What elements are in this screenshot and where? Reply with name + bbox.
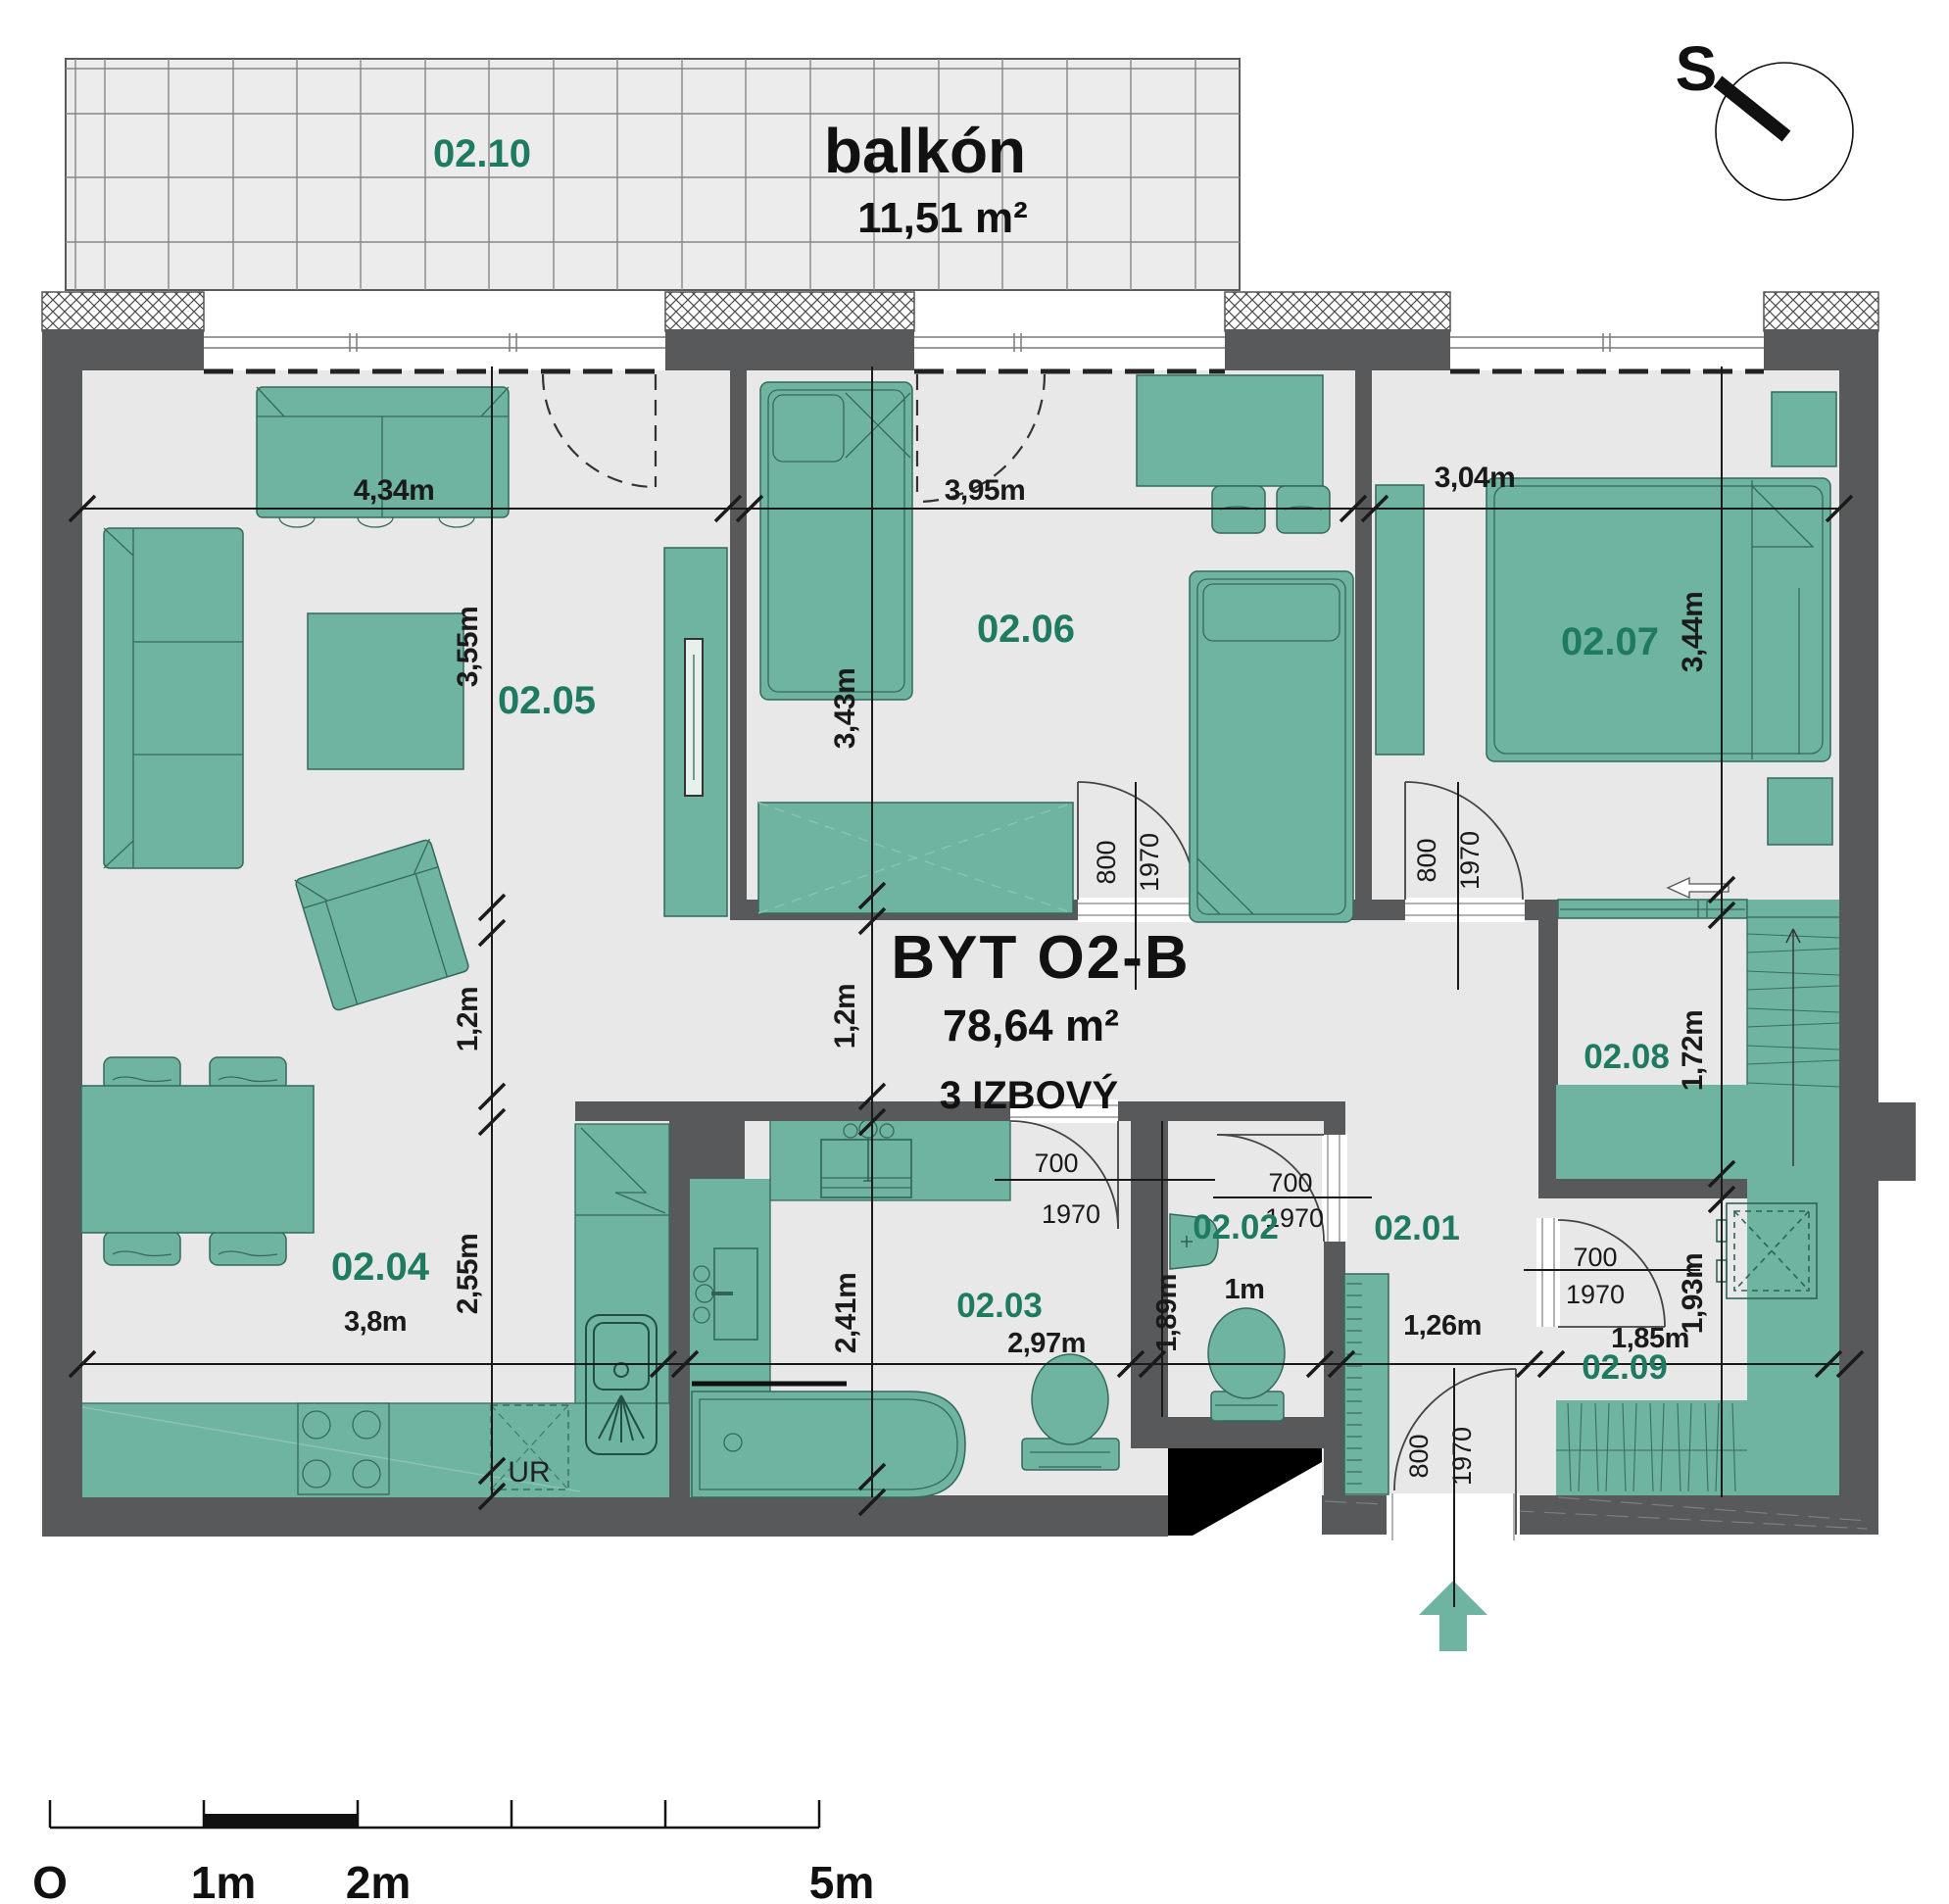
svg-text:1970: 1970 (1447, 1427, 1477, 1486)
svg-text:02.10: 02.10 (433, 132, 531, 175)
svg-text:1970: 1970 (1042, 1199, 1100, 1229)
svg-text:3,8m: 3,8m (344, 1306, 407, 1338)
svg-text:3 IZBOVÝ: 3 IZBOVÝ (940, 1072, 1119, 1117)
svg-text:02.02: 02.02 (1193, 1208, 1279, 1246)
svg-text:02.09: 02.09 (1582, 1348, 1668, 1387)
svg-text:1970: 1970 (1455, 831, 1485, 890)
svg-text:2,55m: 2,55m (452, 1234, 484, 1315)
svg-text:1,26m: 1,26m (1403, 1310, 1482, 1342)
svg-text:02.06: 02.06 (977, 608, 1075, 651)
svg-text:1m: 1m (191, 1857, 256, 1904)
svg-text:700: 700 (1034, 1148, 1078, 1178)
svg-text:3,04m: 3,04m (1435, 462, 1516, 494)
svg-text:1970: 1970 (1566, 1280, 1625, 1309)
svg-text:78,64 m²: 78,64 m² (943, 1001, 1119, 1050)
svg-text:11,51 m²: 11,51 m² (857, 194, 1028, 242)
svg-text:02.07: 02.07 (1561, 620, 1659, 663)
svg-text:800: 800 (1404, 1434, 1434, 1478)
svg-text:1970: 1970 (1135, 833, 1164, 892)
svg-text:800: 800 (1092, 840, 1121, 884)
svg-text:3,44m: 3,44m (1677, 592, 1709, 673)
svg-text:700: 700 (1268, 1168, 1312, 1197)
svg-text:800: 800 (1412, 838, 1441, 882)
svg-text:02.08: 02.08 (1584, 1038, 1670, 1076)
svg-text:1,93m: 1,93m (1677, 1253, 1709, 1335)
svg-text:balkón: balkón (824, 116, 1026, 186)
svg-text:4,34m: 4,34m (354, 474, 435, 507)
svg-text:1,2m: 1,2m (452, 987, 484, 1051)
svg-text:02.01: 02.01 (1374, 1209, 1460, 1247)
svg-text:BYT O2-B: BYT O2-B (891, 924, 1190, 992)
svg-text:5m: 5m (809, 1857, 874, 1904)
svg-text:3,43m: 3,43m (829, 668, 861, 750)
svg-text:O: O (32, 1857, 68, 1904)
svg-text:1,89m: 1,89m (1151, 1274, 1183, 1352)
svg-text:3,55m: 3,55m (452, 607, 484, 688)
svg-text:2m: 2m (346, 1857, 411, 1904)
svg-text:02.04: 02.04 (331, 1245, 430, 1289)
svg-text:UR: UR (508, 1456, 550, 1489)
svg-text:02.05: 02.05 (498, 679, 596, 722)
svg-text:2,41m: 2,41m (830, 1273, 862, 1354)
svg-text:S: S (1676, 33, 1718, 104)
svg-text:1m: 1m (1225, 1274, 1265, 1305)
svg-text:3,95m: 3,95m (945, 474, 1026, 507)
svg-text:02.03: 02.03 (956, 1287, 1043, 1325)
svg-text:1,72m: 1,72m (1677, 1010, 1709, 1092)
svg-text:2,97m: 2,97m (1007, 1328, 1086, 1359)
svg-text:700: 700 (1573, 1243, 1617, 1272)
svg-text:1,2m: 1,2m (829, 984, 861, 1049)
